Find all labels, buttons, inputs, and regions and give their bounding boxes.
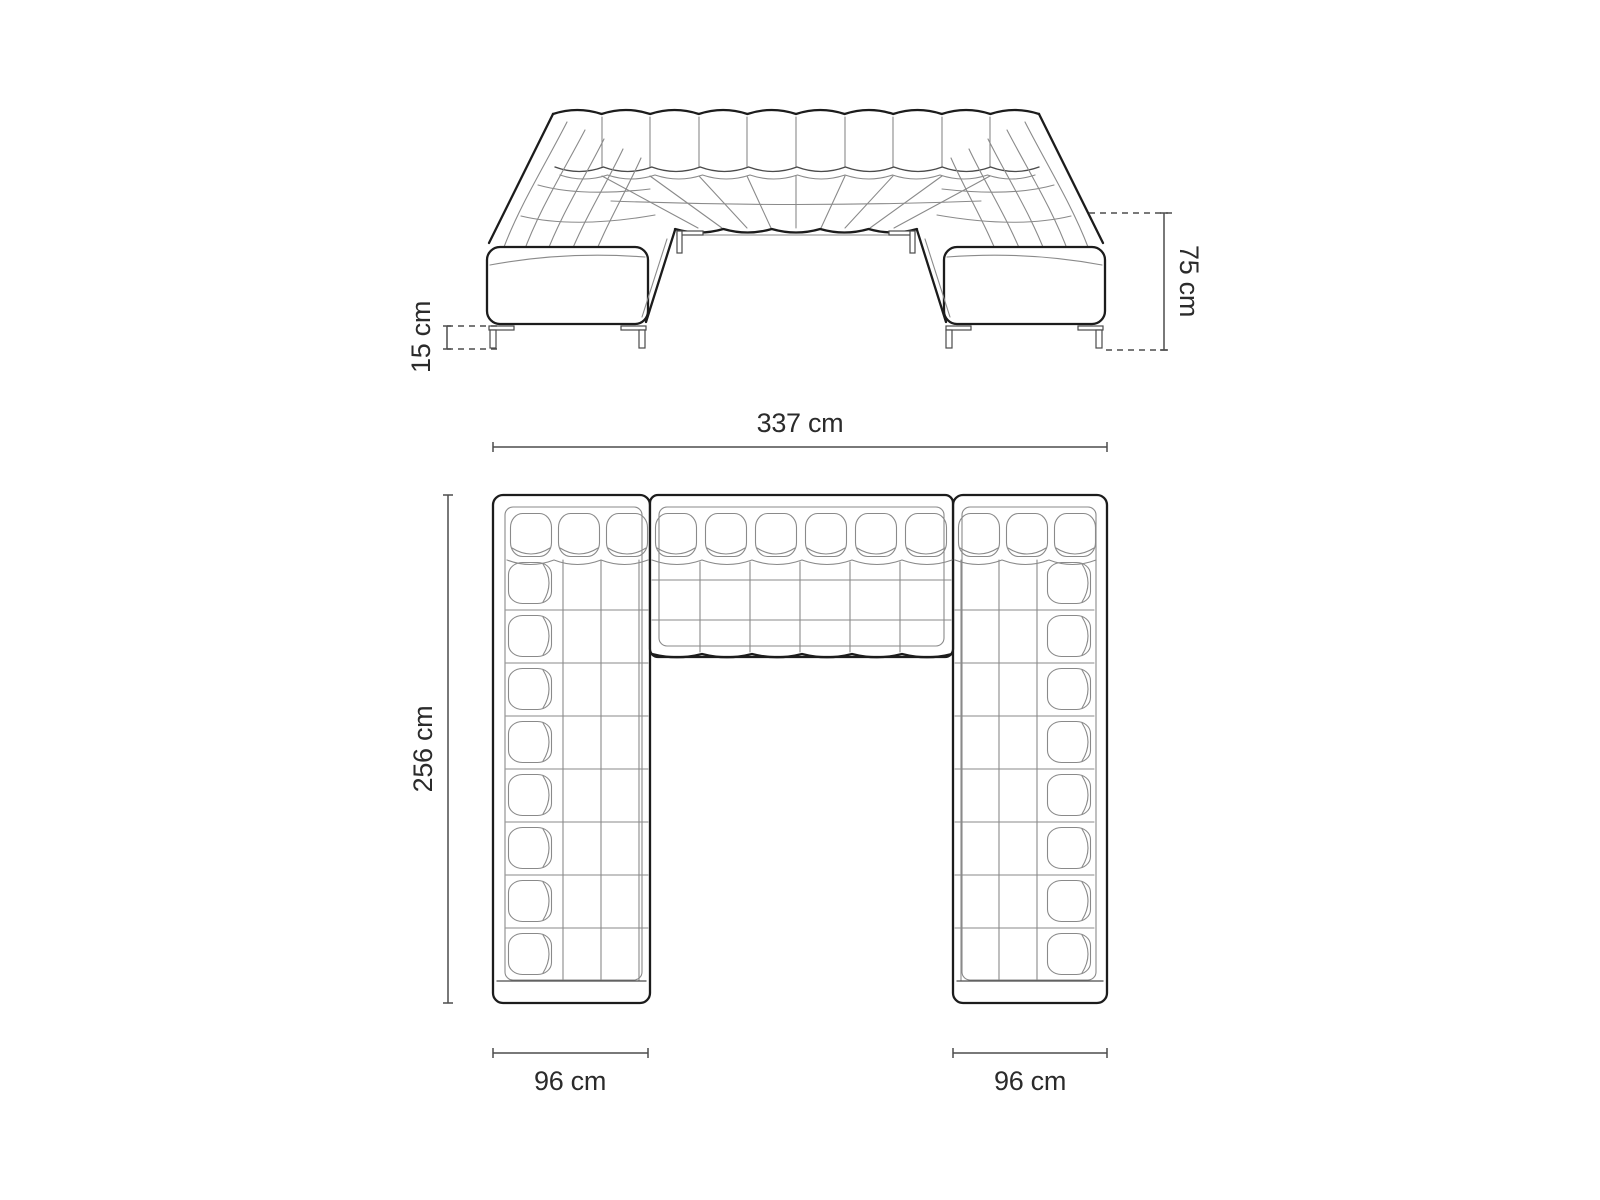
top-plan-view: 337 cm 256 cm 96 cm 96 cm (408, 408, 1107, 1096)
right-arm-width-dimension: 96 cm (953, 1048, 1107, 1096)
seat-front-edges (642, 229, 950, 322)
front-elevation-view: 15 cm 75 cm (406, 110, 1204, 373)
overall-height-dimension: 75 cm (1089, 213, 1204, 350)
left-arm-width-label: 96 cm (534, 1066, 606, 1096)
right-arm-width-label: 96 cm (994, 1066, 1066, 1096)
sofa-dimension-diagram: 15 cm 75 cm (0, 0, 1600, 1200)
leg-height-label: 15 cm (406, 301, 436, 373)
overall-width-label: 337 cm (757, 408, 844, 438)
right-arm-front-panel (944, 247, 1105, 324)
overall-width-dimension: 337 cm (493, 408, 1107, 452)
overall-depth-label: 256 cm (408, 706, 438, 793)
diagram-canvas: 15 cm 75 cm (0, 0, 1600, 1200)
left-arm-width-dimension: 96 cm (493, 1048, 648, 1096)
overall-height-label: 75 cm (1174, 245, 1204, 317)
sofa-back-tufting (555, 117, 1039, 228)
overall-depth-dimension: 256 cm (408, 495, 453, 1003)
left-arm-front-panel (487, 247, 648, 324)
